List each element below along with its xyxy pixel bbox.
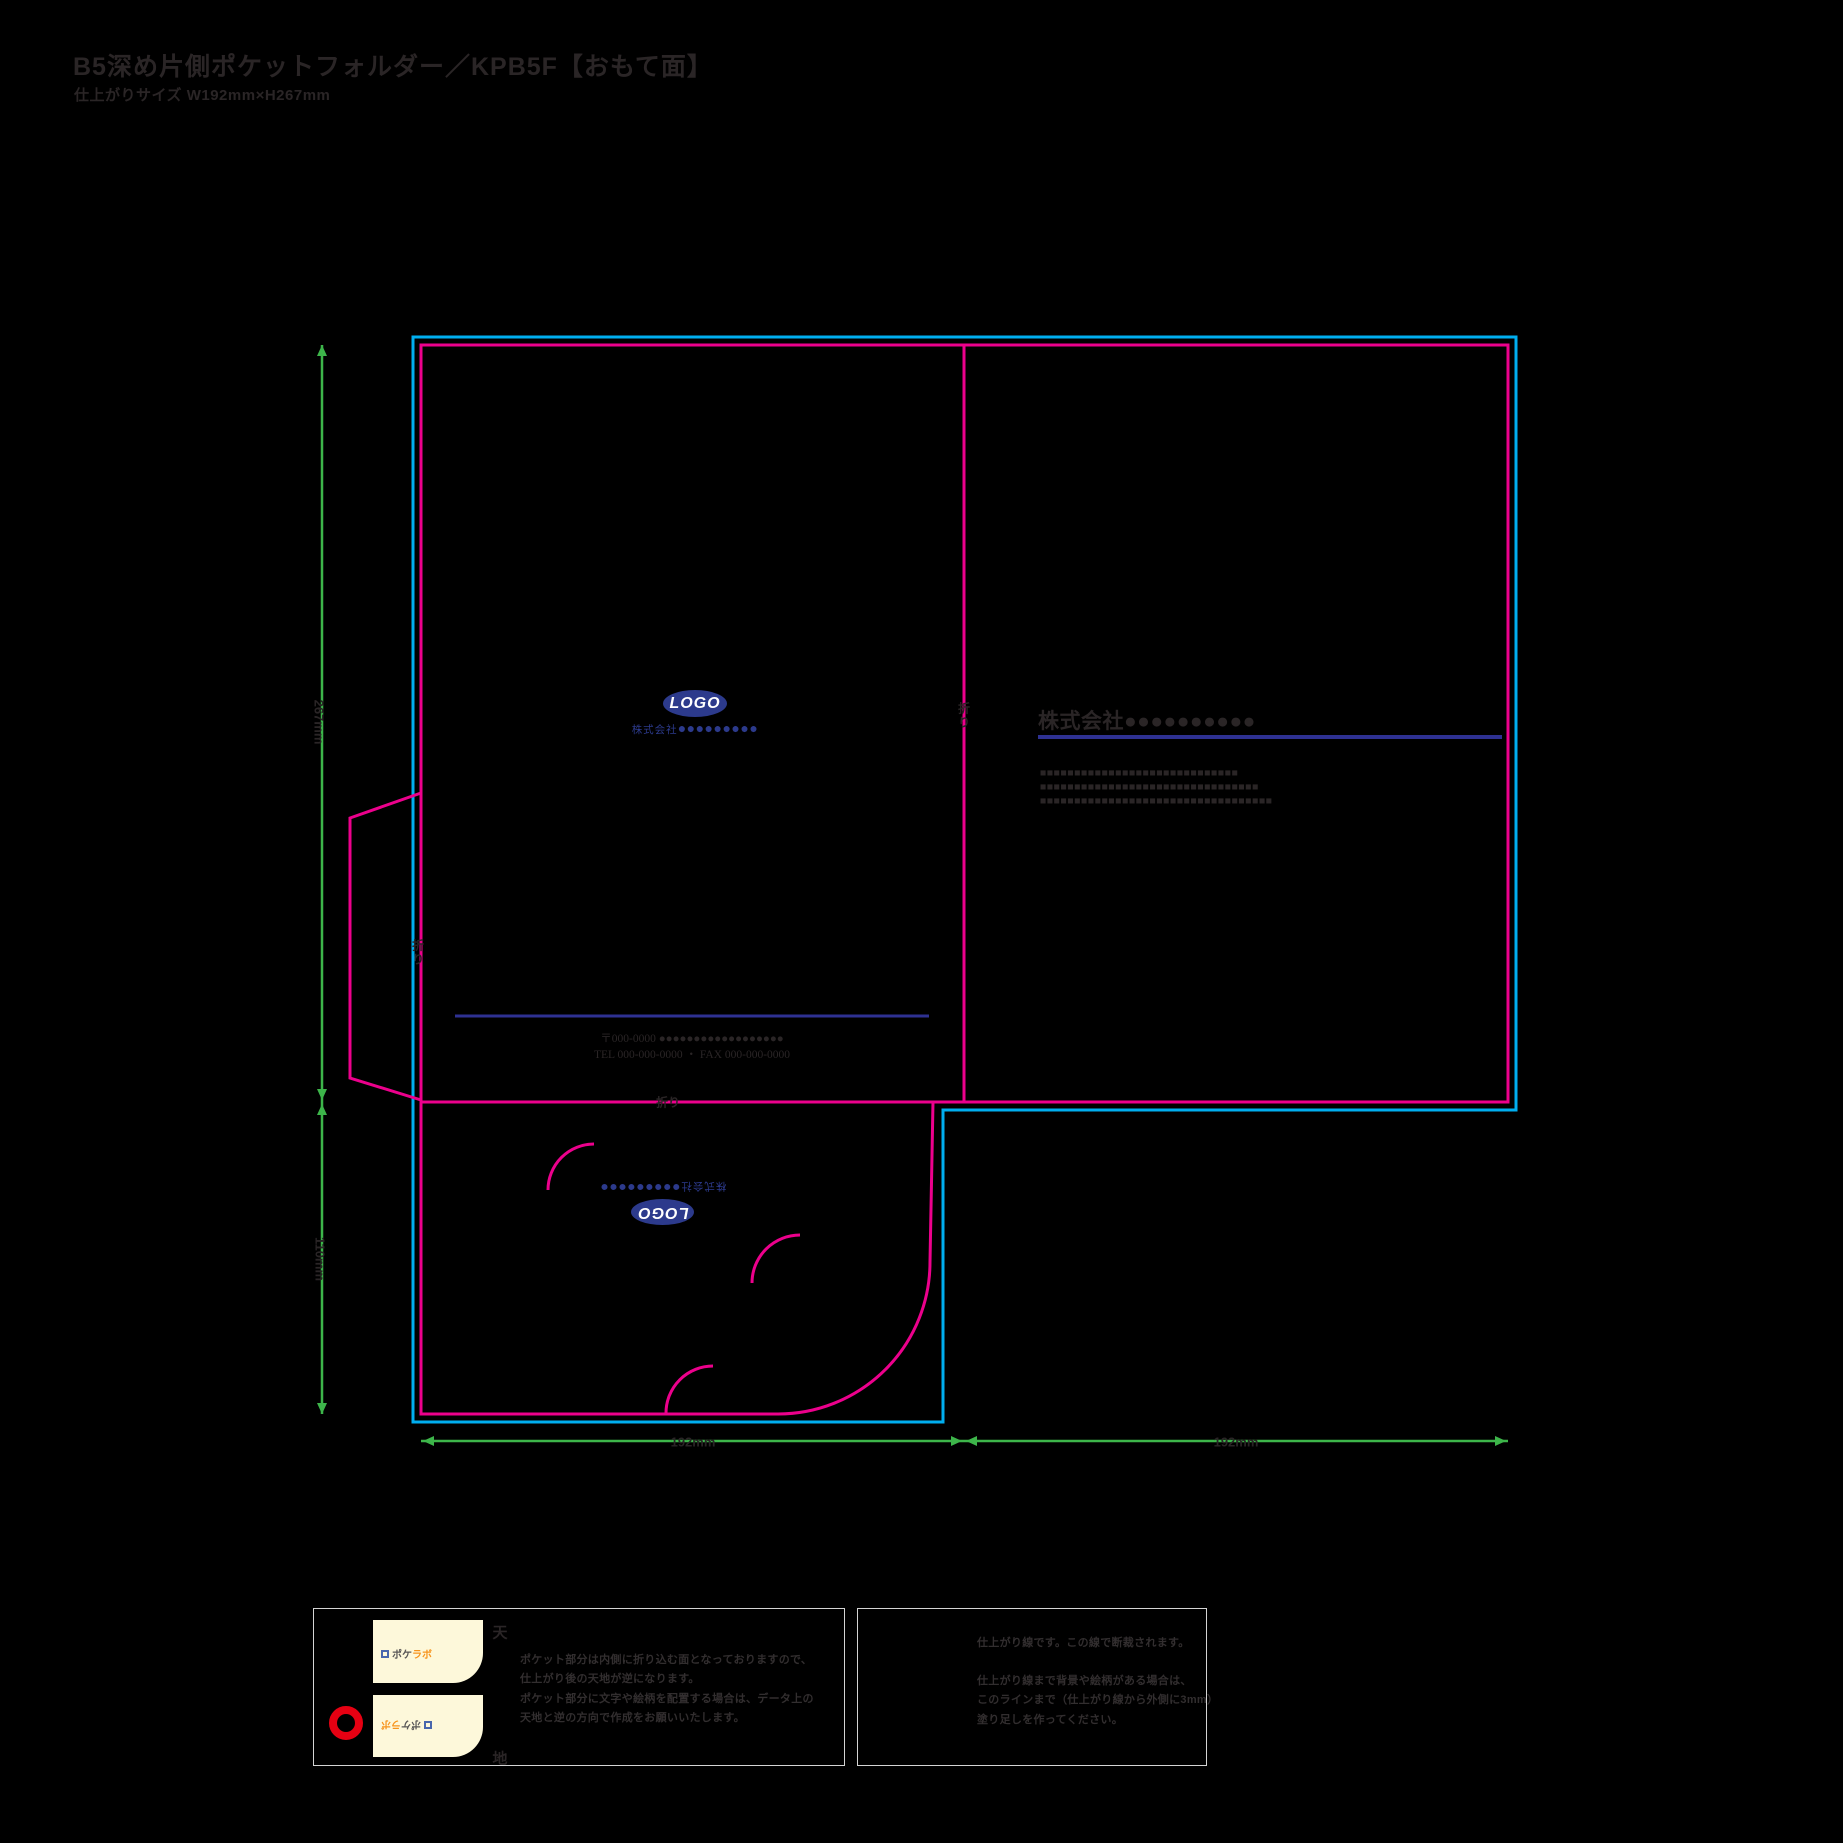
bottom-direction-label: 地 [492,1748,507,1769]
front-address-line1: 〒000-0000 ●●●●●●●●●●●●●●●●●● [480,1031,904,1047]
dim-height-pocket: 110mm [313,1237,328,1281]
correct-mark-circle [329,1706,363,1740]
pocket-slit-arc-2 [752,1235,800,1283]
pocket-slit-arc-3 [666,1366,713,1413]
dim-width-right: 192mm [1214,1435,1259,1450]
front-address-block: 〒000-0000 ●●●●●●●●●●●●●●●●●● TEL 000-000… [480,1031,904,1063]
back-body-placeholder: ■■■■■■■■■■■■■■■■■■■■■■■■■■■■■ ■■■■■■■■■■… [1040,766,1273,808]
front-company-line: 株式会社●●●●●●●●● [632,720,759,738]
front-address-line2: TEL 000-000-0000 ・ FAX 000-000-0000 [480,1047,904,1063]
legend-bleed-note: 仕上がり線まで背景や絵柄がある場合は、 このラインまで（仕上がり線から外側に3m… [977,1672,1218,1730]
fold-label-spine: 折り [956,702,973,730]
thumb-logo: ポケラボ [381,1646,432,1661]
pocket-logo-block: LOGO 株式会社●●●●●●●●● [557,1178,769,1225]
front-logo-oval: LOGO [663,690,727,717]
dim-height-cover: 267mm [312,700,327,745]
fold-label-pocket: 折り [656,1094,680,1111]
template-sheet: B5深め片側ポケットフォルダー／KPB5F【おもて面】 仕上がりサイズ W192… [0,0,1843,1843]
legend-cut-note: 仕上がり線です。この線で断裁されます。 [977,1634,1190,1653]
template-linework [0,0,1843,1843]
front-logo-block: LOGO 株式会社●●●●●●●●● [585,690,805,738]
page-subtitle: 仕上がりサイズ W192mm×H267mm [74,84,330,105]
folder-icon [381,1650,389,1658]
page-title: B5深め片側ポケットフォルダー／KPB5F【おもて面】 [73,47,713,83]
legend-orientation-text: ポケット部分は内側に折り込む面となっておりますので、 仕上がり後の天地が逆になり… [520,1651,814,1728]
pocket-company-line: 株式会社●●●●●●●●● [600,1178,727,1196]
back-company-name: 株式会社●●●●●●●●●● [1038,705,1256,735]
pocket-logo-oval: LOGO [632,1199,695,1225]
dim-width-left: 192mm [671,1435,716,1450]
fold-label-flap: 折り [410,939,427,967]
pocket-logo-text: LOGO [637,1203,688,1221]
thumb-logo-flipped: ポケラボ [381,1718,432,1733]
folder-icon [424,1722,432,1730]
top-direction-label: 天 [492,1622,507,1643]
front-logo-text: LOGO [669,695,720,713]
